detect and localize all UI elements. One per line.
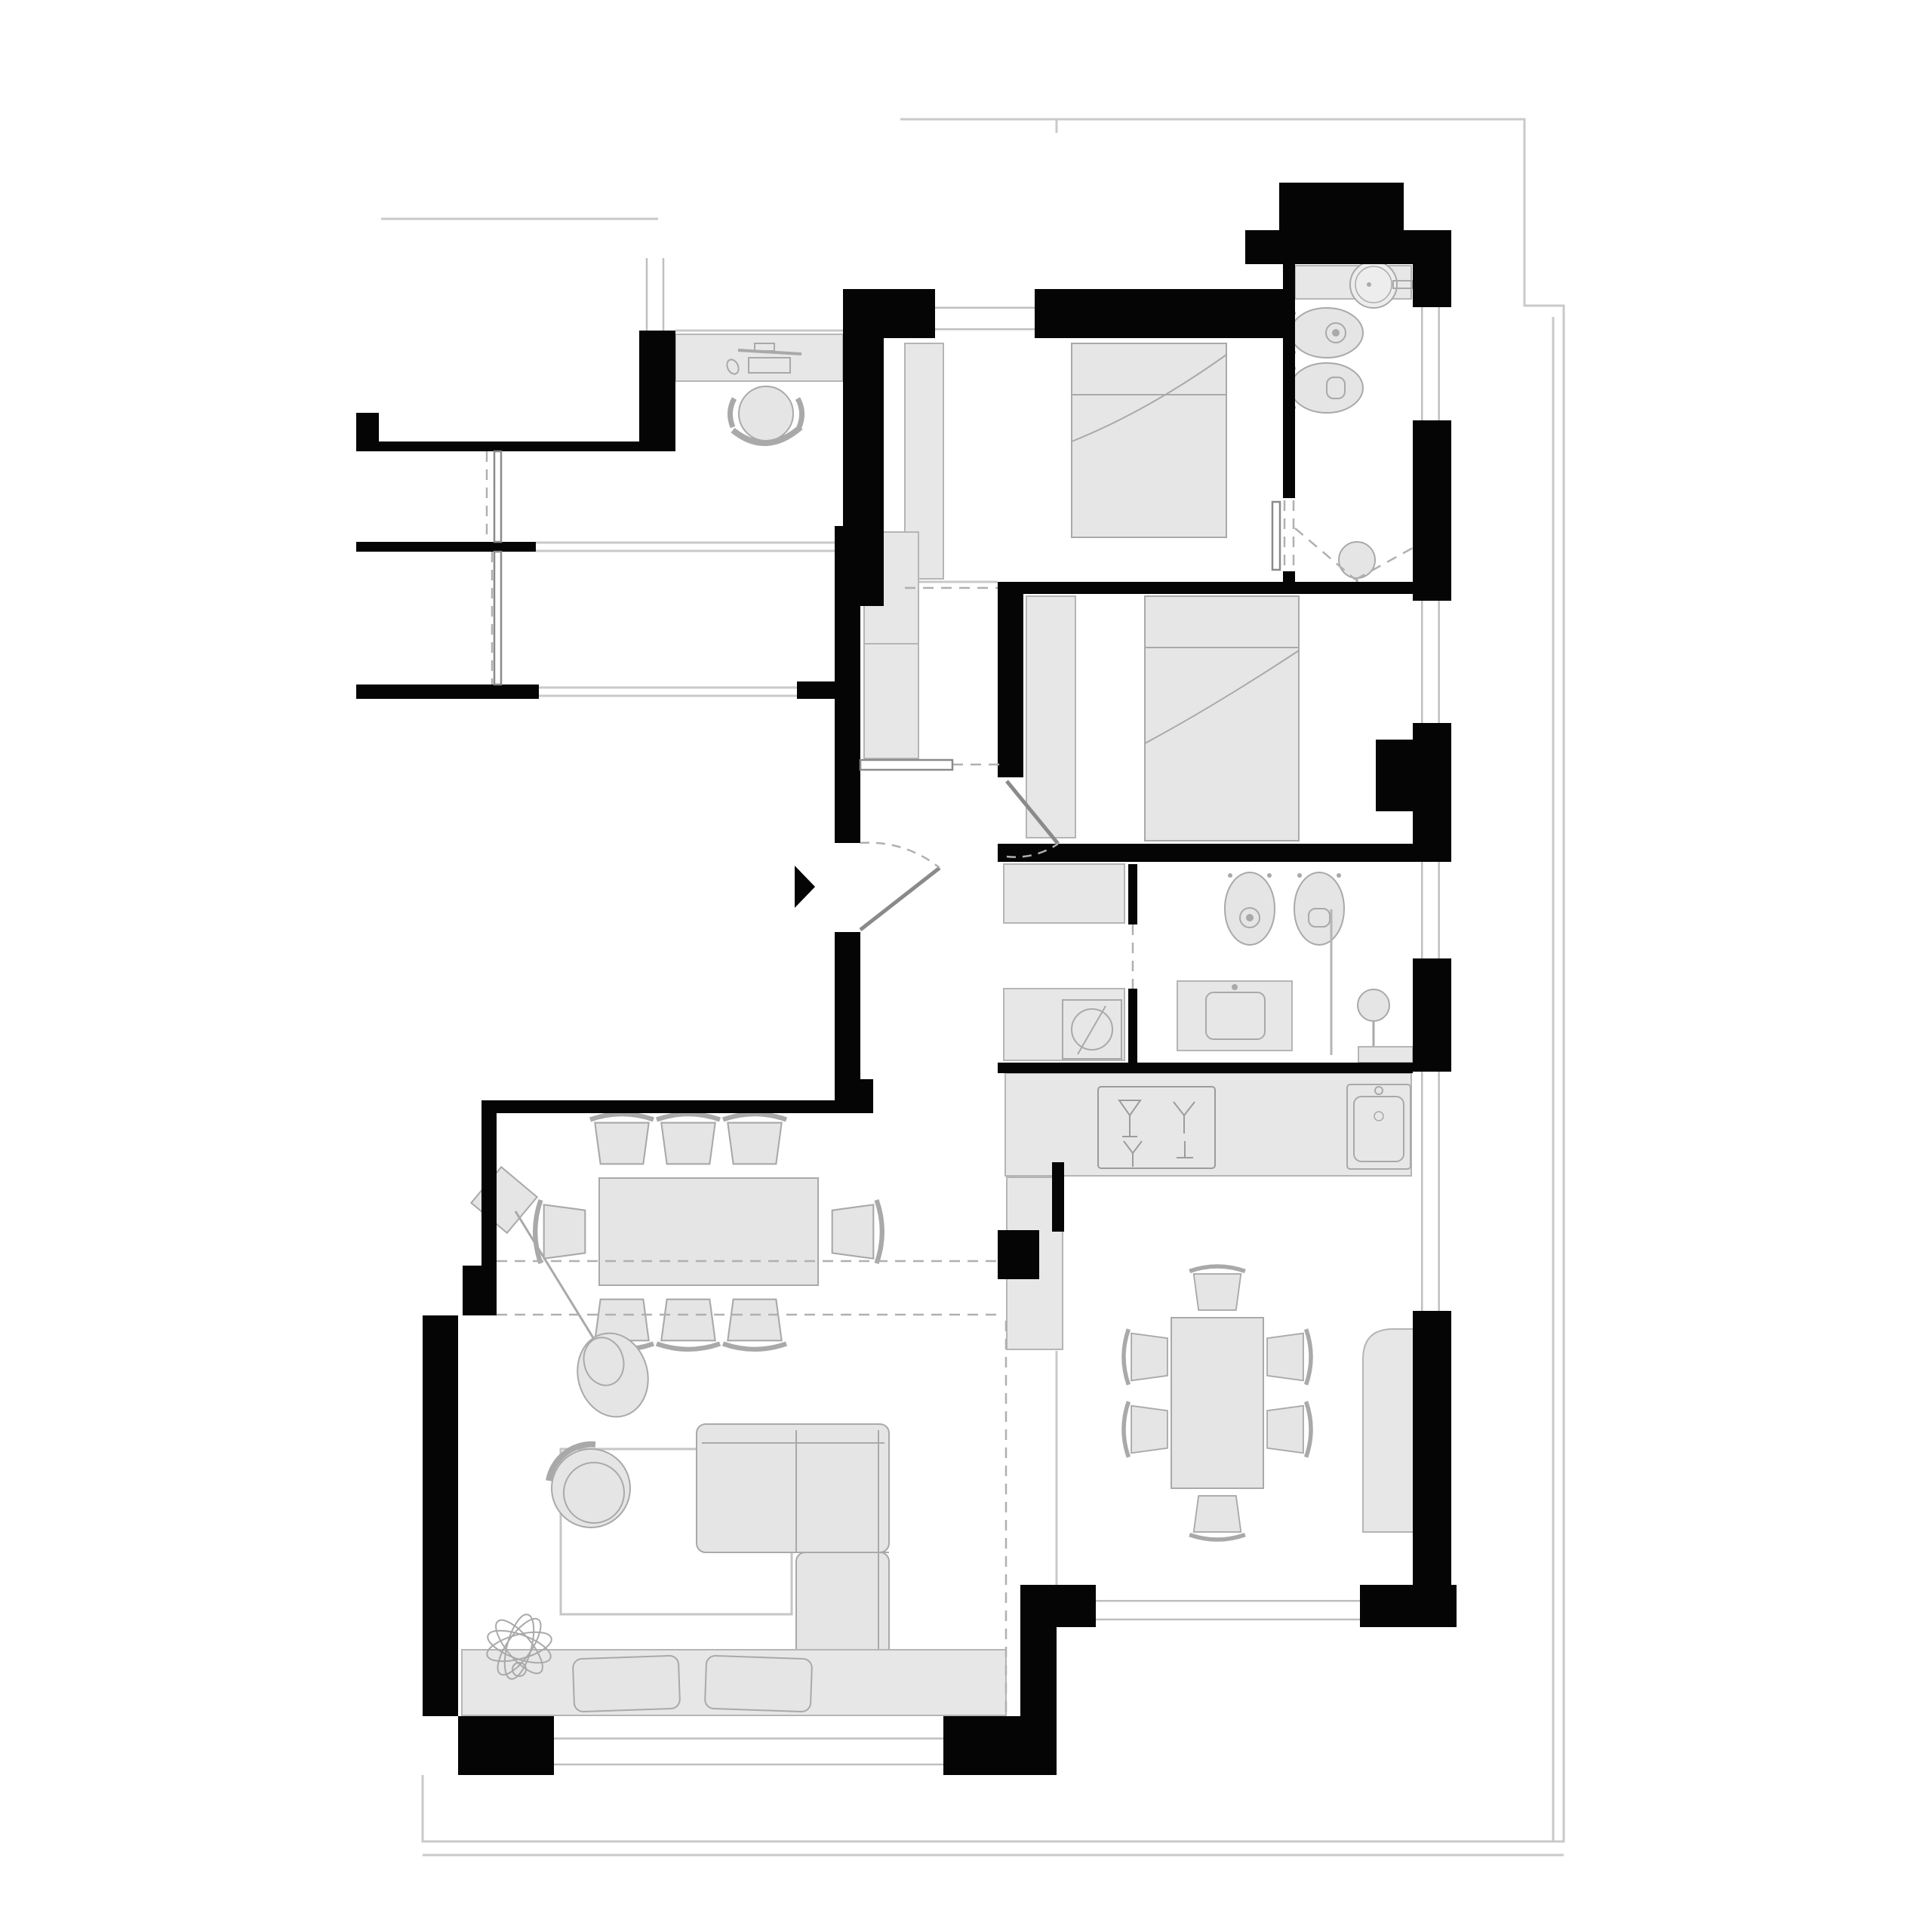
- floor-plan-page: Apartment floor plan: [0, 0, 1932, 1932]
- bathroom1-shower-head: [1339, 542, 1375, 587]
- plan-stage: [0, 0, 1932, 1932]
- bathroom1-bidet: [1291, 308, 1363, 358]
- office-desk: [675, 334, 843, 381]
- right-window-bathroom2: [1413, 862, 1451, 958]
- laundry-cabinet: [1004, 864, 1124, 923]
- bed-1: [1072, 343, 1226, 537]
- kitchen-table: [1124, 1266, 1311, 1540]
- bathroom2-vanity: [1177, 981, 1292, 1051]
- bathroom2-shower: [1331, 909, 1389, 1055]
- ensuite-sliding-door: [1272, 502, 1280, 570]
- bed-2: [1145, 596, 1299, 841]
- bathroom2-bidet: [1225, 872, 1275, 945]
- living-south-window: [554, 1716, 943, 1775]
- hall-cabinet-2: [864, 644, 918, 758]
- hall-pocket-door: [860, 760, 952, 770]
- entry-door: [860, 843, 940, 930]
- office-chair: [730, 386, 801, 443]
- bathroom2-niche-shelf: [1358, 1047, 1413, 1063]
- bench-pillow-2: [705, 1656, 812, 1712]
- floor-plan: [0, 0, 1932, 1932]
- bathroom1-toilet: [1291, 363, 1363, 413]
- leftwing-pocket-door-1: [494, 451, 501, 542]
- right-window-bedroom2: [1413, 601, 1451, 723]
- kitchen-south-window: [1096, 1585, 1360, 1627]
- bench-pillow-1: [573, 1656, 680, 1712]
- entry-arrow: [795, 866, 815, 908]
- bedroom1-top-window: [935, 289, 1035, 338]
- kitchen-tall-cabinet: [1363, 1329, 1419, 1532]
- bedroom2-wardrobe: [1026, 596, 1075, 838]
- leftwing-pocket-door-2: [494, 552, 501, 685]
- right-window-bathroom1: [1413, 307, 1451, 420]
- kitchen-sink: [1347, 1084, 1411, 1169]
- right-window-kitchen: [1413, 1072, 1451, 1311]
- office-window: [638, 258, 675, 331]
- bathroom2-toilet: [1294, 872, 1344, 945]
- floor-plan-canvas: [0, 0, 1932, 1932]
